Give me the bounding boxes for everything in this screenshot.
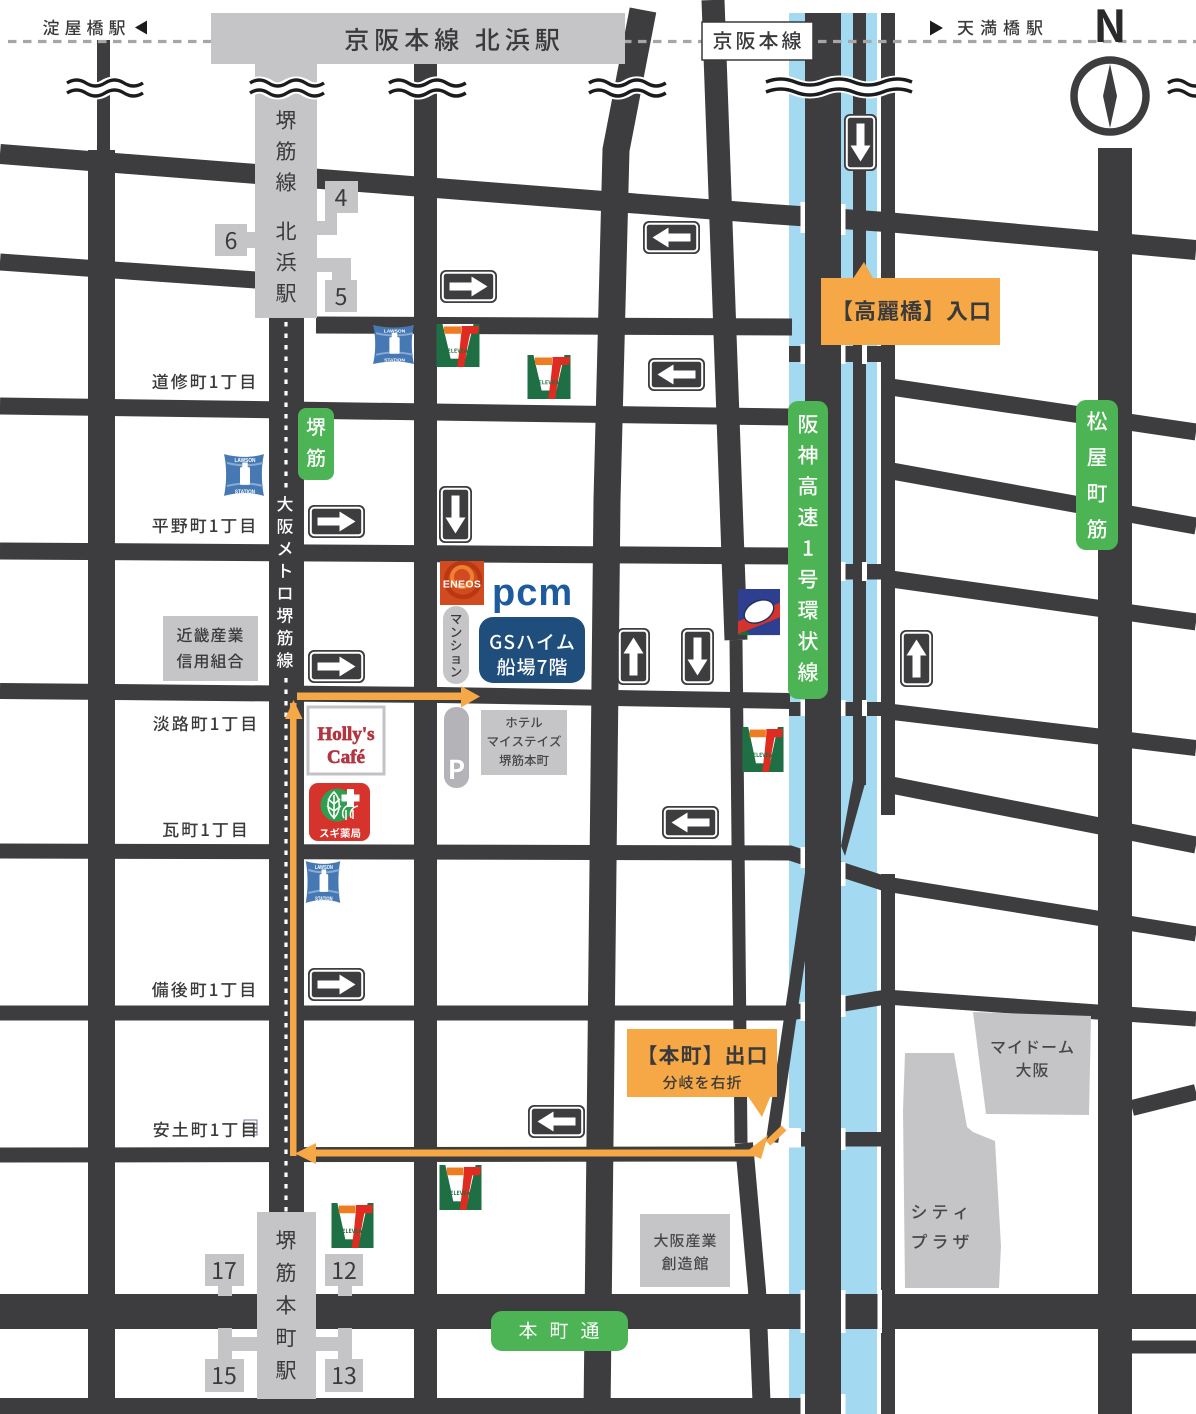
svg-text:pcm: pcm <box>492 572 573 614</box>
svg-text:ENEOS: ENEOS <box>443 579 481 591</box>
svg-text:Café: Café <box>327 747 365 768</box>
svg-text:Holly's: Holly's <box>317 724 374 745</box>
